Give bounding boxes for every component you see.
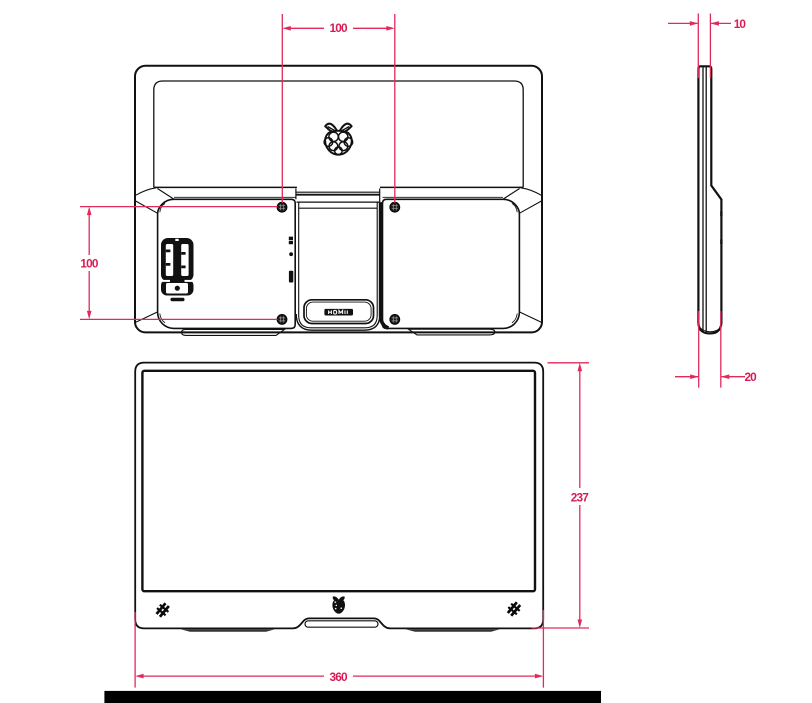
svg-text:237: 237 bbox=[571, 490, 589, 504]
svg-text:20: 20 bbox=[745, 370, 758, 384]
svg-text:100: 100 bbox=[330, 21, 348, 35]
svg-text:100: 100 bbox=[80, 257, 98, 271]
svg-text:360: 360 bbox=[330, 670, 348, 684]
svg-text:10: 10 bbox=[734, 17, 747, 31]
